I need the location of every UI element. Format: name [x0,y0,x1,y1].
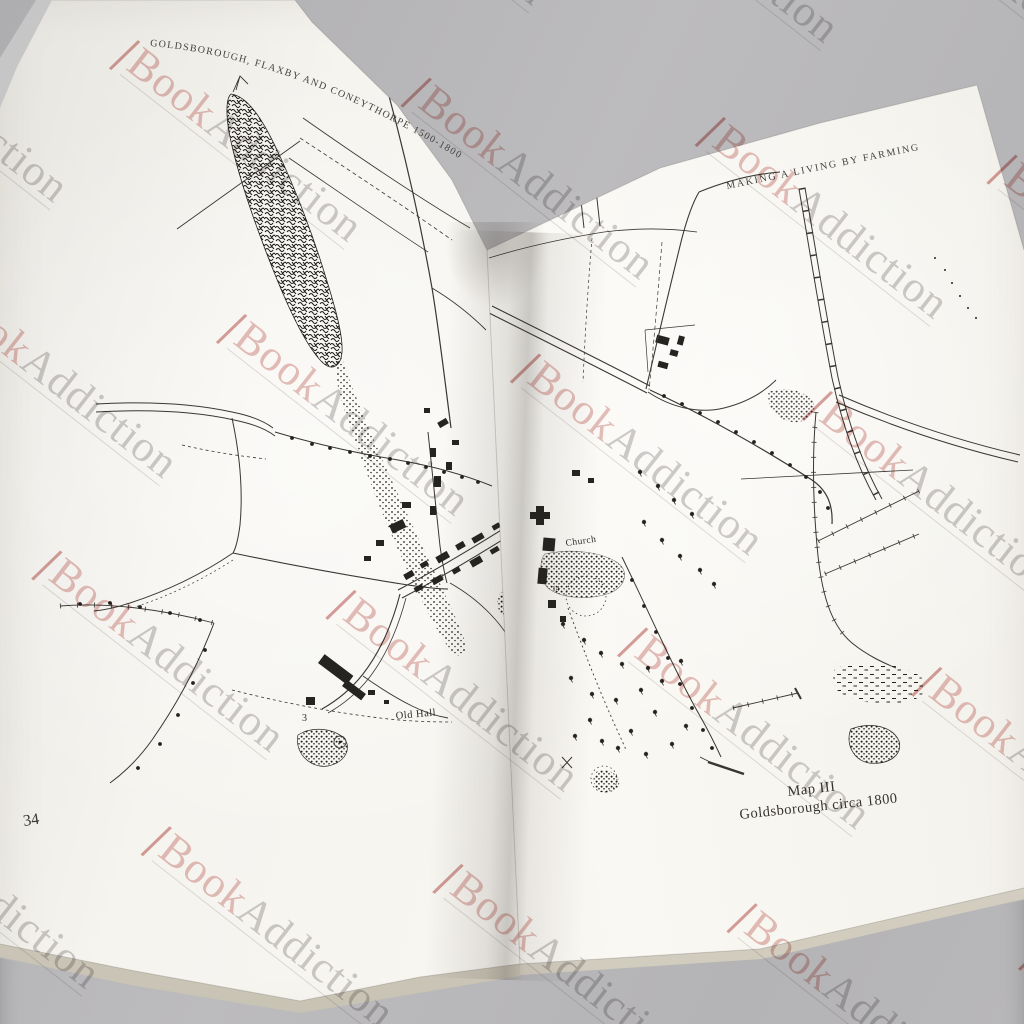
map-left-half [60,76,570,783]
map-label-church: Church [565,535,597,549]
map-label-old-hall: Old Hall [395,708,436,722]
map-label-plot-5: 5 [394,527,398,535]
page-number: 34 [22,811,40,830]
map-label-plot-3: 3 [302,713,307,724]
wood-area [227,94,342,367]
pond [849,725,900,763]
old-hall-buildings [306,654,389,705]
marsh-area [833,663,925,704]
map-right-half [489,154,1020,792]
printed-text: GOLDSBOROUGH, FLAXBY AND CONEYTHORPE 150… [22,38,921,830]
farm-buildings [655,335,685,370]
map-label-plot-14: 14 [552,584,560,593]
church-symbol [530,506,550,525]
map-illustration: GOLDSBOROUGH, FLAXBY AND CONEYTHORPE 150… [0,0,1024,1024]
tree-scatter [561,470,715,758]
right-page-header: MAKING A LIVING BY FARMING [725,142,921,192]
map-label-plot-6: 6 [440,573,444,581]
book-photo: GOLDSBOROUGH, FLAXBY AND CONEYTHORPE 150… [0,0,1024,1024]
